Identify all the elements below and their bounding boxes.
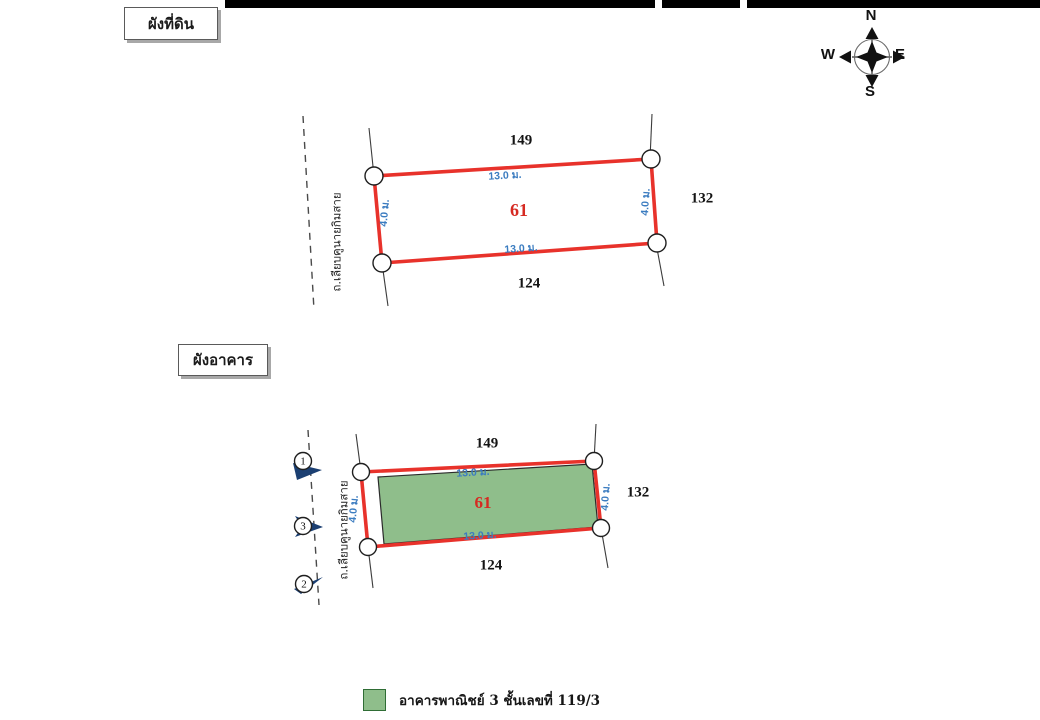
legend-building-swatch [363, 689, 386, 711]
legend-building-label: อาคารพาณิชย์ 3 ชั้นเลขที่ 119/3 [399, 689, 600, 711]
photo-marker-number: 3 [300, 521, 306, 533]
photo-marker-number: 2 [301, 579, 307, 591]
photo-marker-number: 1 [300, 456, 306, 468]
compass-label-s: S [865, 83, 875, 100]
compass-label-e: E [895, 46, 905, 63]
compass-star-icon [856, 41, 888, 73]
dimension-bottom-label: 13.0 ม. [504, 242, 538, 256]
compass-label-w: W [821, 46, 836, 63]
dimension-left-label: 4.0 ม. [347, 495, 361, 523]
survey-corner-marker [648, 234, 666, 252]
scanned-survey-page: ผังที่ดิน ผังอาคาร N S W E ถ.เลียบคูนายก… [0, 0, 1040, 720]
adjacent-parcel-right-label: 132 [627, 484, 650, 500]
parcel-number-label: 61 [475, 493, 492, 512]
survey-corner-marker [642, 150, 660, 168]
dimension-top-label: 13.0 ม. [456, 466, 490, 480]
compass-rose: N S W E [821, 7, 905, 100]
photo-marker-3: 3 [295, 516, 324, 537]
adjacent-parcel-top-label: 149 [510, 132, 533, 148]
adjacent-parcel-bottom-label: 124 [480, 557, 503, 573]
survey-corner-marker [353, 464, 370, 481]
adjacent-parcel-top-label: 149 [476, 435, 499, 451]
photo-marker-1: 1 [293, 453, 322, 481]
compass-north-arrow-icon [866, 27, 879, 39]
land-plan-diagram: ถ.เลียบคูนายกิมสาย 149 132 124 61 13.0 ม… [303, 114, 713, 310]
survey-corner-marker [586, 453, 603, 470]
dimension-bottom-label: 13.0 ม. [463, 529, 497, 543]
dimension-right-label: 4.0 ม. [639, 188, 653, 216]
dimension-right-label: 4.0 ม. [599, 483, 613, 511]
road-name-label: ถ.เลียบคูนายกิมสาย [330, 192, 344, 291]
survey-drawing: N S W E ถ.เลียบคูนายกิมสาย 149 132 124 6… [0, 0, 1040, 720]
dimension-top-label: 13.0 ม. [488, 169, 522, 183]
dimension-left-label: 4.0 ม. [378, 199, 392, 227]
survey-corner-marker [365, 167, 383, 185]
building-plan-diagram: ถ.เลียบคูนายกิมสาย 1 3 2 [293, 424, 649, 605]
survey-corner-marker [373, 254, 391, 272]
compass-west-arrow-icon [839, 51, 851, 64]
adjacent-parcel-right-label: 132 [691, 190, 714, 206]
survey-corner-marker [593, 520, 610, 537]
adjacent-parcel-bottom-label: 124 [518, 275, 541, 291]
road-edge-dashed-line [303, 116, 314, 310]
parcel-number-label: 61 [510, 200, 528, 220]
compass-label-n: N [866, 7, 877, 24]
survey-corner-marker [360, 539, 377, 556]
legend: อาคารพาณิชย์ 3 ชั้นเลขที่ 119/3 [363, 689, 600, 711]
